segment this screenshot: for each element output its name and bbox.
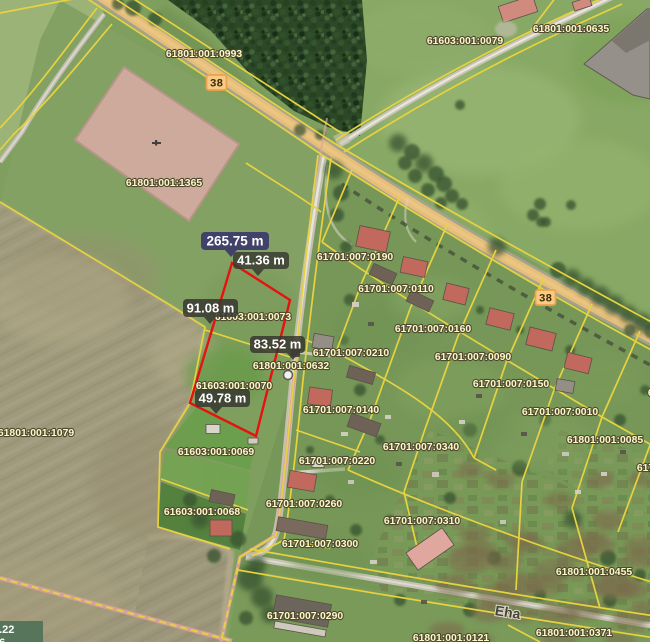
svg-text:61701:007:0300: 61701:007:0300 <box>282 539 358 550</box>
svg-text:61701:007:0200: 61701:007:0200 <box>637 463 650 474</box>
svg-text:61603:001:0068: 61603:001:0068 <box>164 507 240 518</box>
svg-text:61801:001:0632: 61801:001:0632 <box>253 361 329 372</box>
svg-text:61801:001:0455: 61801:001:0455 <box>556 567 632 578</box>
svg-text:49.78 m: 49.78 m <box>199 391 247 406</box>
svg-text:61603:001:0079: 61603:001:0079 <box>427 36 503 47</box>
svg-text:38: 38 <box>210 79 224 91</box>
svg-text:61801:001:1079: 61801:001:1079 <box>0 428 74 439</box>
svg-text:96: 96 <box>0 637 5 642</box>
svg-text:61701:007:0110: 61701:007:0110 <box>358 284 434 295</box>
svg-text:61701:007:0210: 61701:007:0210 <box>313 348 389 359</box>
svg-text:61801:001:0121: 61801:001:0121 <box>413 633 489 642</box>
svg-text:41.36 m: 41.36 m <box>237 253 285 268</box>
svg-text:61701:007:0090: 61701:007:0090 <box>435 352 511 363</box>
svg-text:61801:001:0635: 61801:001:0635 <box>533 24 609 35</box>
svg-text:38: 38 <box>539 294 553 306</box>
svg-text:91.08 m: 91.08 m <box>187 301 235 316</box>
svg-text:1.22: 1.22 <box>0 624 14 636</box>
svg-text:61701:007:0010: 61701:007:0010 <box>522 407 598 418</box>
svg-text:61801:001:0993: 61801:001:0993 <box>166 49 242 60</box>
svg-text:61701:007:0160: 61701:007:0160 <box>395 324 471 335</box>
svg-text:61801:001:1365: 61801:001:1365 <box>126 178 202 189</box>
svg-text:61701:007:0220: 61701:007:0220 <box>299 456 375 467</box>
svg-text:61701:007:0140: 61701:007:0140 <box>303 405 379 416</box>
svg-text:265.75 m: 265.75 m <box>206 234 263 249</box>
svg-text:61701:007:0290: 61701:007:0290 <box>267 611 343 622</box>
svg-text:61701:007:0310: 61701:007:0310 <box>384 516 460 527</box>
svg-text:61701:007:0260: 61701:007:0260 <box>266 499 342 510</box>
svg-text:61701:007:0340: 61701:007:0340 <box>383 442 459 453</box>
svg-text:61701:007:0190: 61701:007:0190 <box>317 252 393 263</box>
svg-text:61801:001:0085: 61801:001:0085 <box>567 435 643 446</box>
svg-text:61603:001:0069: 61603:001:0069 <box>178 447 254 458</box>
svg-text:61701:007:0150: 61701:007:0150 <box>473 379 549 390</box>
svg-text:61801:001:0371: 61801:001:0371 <box>536 628 612 639</box>
